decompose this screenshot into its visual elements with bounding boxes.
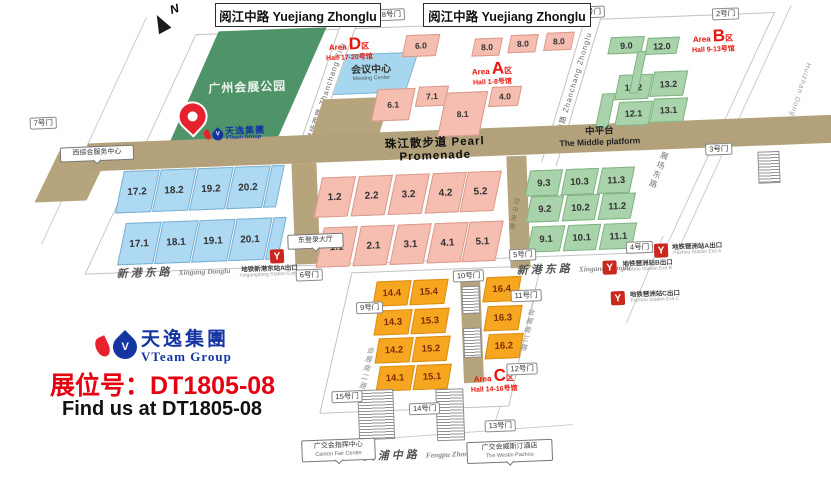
metro-station-label: 地铁琶洲站A出口 Pazhou Station Exit A: [672, 242, 723, 257]
boundary-lines: [0, 0, 825, 4]
halls-area-b-main: 9.310.311.39.210.211.29.110.111.1: [0, 0, 825, 4]
stairs: [757, 151, 780, 184]
stairs: [435, 388, 465, 441]
area-label: Area B区 Hall 9-13号馆: [668, 26, 759, 55]
building-labels: 西综合服务中心 东登录大厅 广交会指挥中心 Canton Fair Center…: [0, 0, 825, 4]
company-name-cn: 天逸集團: [141, 330, 232, 350]
street-label: 阅江中路 Yuejiang Zhonglu: [219, 6, 377, 25]
halls-area-a-main: 1.22.23.24.25.21.12.13.14.15.1: [0, 0, 825, 4]
hall: 12.1: [614, 101, 653, 127]
area-label: Area D区 Hall 17-20号馆: [304, 34, 395, 63]
metro-station-label: 地铁琶洲站C出口 Pazhou Station Exit C: [630, 290, 681, 305]
gate-label: 8号门: [378, 8, 406, 21]
hall: 10.1: [563, 224, 601, 251]
logo-mark-red-icon: [202, 129, 212, 141]
gate-label: 9号门: [356, 301, 384, 314]
hall: 10.2: [562, 194, 600, 221]
building-label: 广交会指挥中心 Canton Fair Center: [301, 438, 376, 462]
middle-platform-label: 中平台 The Middle platform: [544, 125, 655, 150]
hall: 13.2: [649, 70, 688, 97]
halls-area-d: 17.218.219.220.217.118.119.120.1: [0, 0, 825, 4]
street-xingang-west: 新港东路Xingang Donglu: [116, 261, 230, 281]
logo-mark-red-icon: [92, 335, 112, 359]
halls-area-c: 14.415.416.414.315.316.314.215.216.214.1…: [0, 0, 825, 4]
metro-icon: Y: [654, 243, 669, 258]
metro-icon: Y: [602, 260, 617, 275]
gate-labels: 8号门1号门2号门7号门3号门5号门4号门6号门9号门10号门11号门12号门1…: [0, 0, 825, 4]
hall: 16.3: [483, 305, 522, 332]
hall: 13.1: [649, 97, 688, 123]
street-fengpu: 凤浦中路Fengpu Zhonglu: [363, 444, 478, 464]
area-labels: Area D区 Hall 17-20号馆 Area A区 Hall 1-8号馆 …: [0, 0, 825, 4]
hall: 14.2: [375, 337, 414, 364]
gate-label: 10号门: [453, 269, 485, 282]
gate-label: 6号门: [296, 269, 324, 282]
logo-mark-blue-icon: V: [210, 127, 226, 143]
halls-area-a-north: 6.08.08.08.06.17.18.14.0: [0, 0, 825, 4]
booth-number-cn: 展位号：DT1805-08: [50, 366, 275, 402]
gate-label: 3号门: [705, 143, 733, 156]
hall: 15.2: [412, 336, 451, 363]
building-label: 东登录大厅: [287, 233, 344, 250]
hall: 6.1: [371, 88, 416, 122]
hall: 11.3: [597, 166, 635, 193]
hall: 8.0: [471, 37, 503, 56]
halls-area-b-north: 9.012.012.213.212.113.1: [0, 0, 825, 4]
metro-icons: YYYY: [0, 0, 825, 4]
gate-label: 15号门: [331, 390, 363, 403]
street-yuejiang-east: 阅江中路 Yuejiang Zhonglu: [423, 3, 591, 27]
gate-label: 2号门: [712, 7, 740, 20]
company-name-en: VTeam Group: [141, 350, 232, 364]
hall: 4.0: [488, 86, 522, 107]
walkway-corridors: [0, 0, 825, 4]
vteam-logo-map: V 天逸集團 VTeam Group: [204, 126, 266, 143]
hall: 14.1: [376, 365, 415, 392]
hall: 10.3: [561, 168, 599, 195]
booth-number-en: Find us at DT1805-08: [62, 398, 262, 421]
hall: 15.4: [409, 279, 448, 306]
street-label: 阅江中路 Yuejiang Zhonglu: [428, 6, 586, 25]
meeting-center-en: Meeting Center: [351, 75, 391, 83]
vteam-logo-large: V 天逸集團 VTeam Group: [96, 330, 232, 364]
hall: 8.0: [543, 32, 575, 51]
gate-label: 5号门: [509, 248, 537, 261]
north-arrow-icon: N: [150, 2, 190, 42]
hall: 6.0: [402, 34, 441, 57]
north-letter: N: [168, 1, 181, 17]
stairs-group: [0, 0, 825, 4]
metro-station-label: 地铁琶洲站B出口 Pazhou Station Exit B: [622, 259, 673, 274]
building-label: 西综合服务中心: [60, 145, 135, 163]
logo-mark-blue-icon: V: [108, 330, 142, 364]
metro-icon: Y: [270, 249, 285, 264]
stairs: [357, 389, 395, 440]
gate-label: 12号门: [506, 362, 538, 375]
canton-fair-map-flyer: N 阅江中路 Yuejiang Zhonglu 阅江中路 Yuejiang Zh…: [0, 0, 831, 483]
hall: 8.0: [507, 34, 539, 53]
hall: 15.1: [413, 364, 452, 391]
stairs: [463, 328, 482, 359]
building-label: 广交会威斯汀酒店 The Westin Pazhou: [466, 439, 553, 464]
north-triangle-icon: [151, 12, 172, 34]
street-yuejiang-west: 阅江中路 Yuejiang Zhonglu: [215, 3, 381, 27]
metro-icon: Y: [611, 291, 626, 306]
hall: 11.2: [598, 192, 636, 219]
hall: 15.3: [410, 308, 449, 335]
hall: 9.3: [525, 169, 563, 196]
metro-labels: 地铁新港东站A出口 Xingangdong Station Exit A 地铁琶…: [0, 0, 825, 4]
gate-label: 7号门: [30, 117, 58, 130]
stairs: [461, 286, 480, 315]
gate-label: 4号门: [626, 241, 654, 254]
area-label: Area A区 Hall 1-8号馆: [447, 58, 538, 87]
gate-label: 14号门: [409, 402, 441, 415]
hall: 9.2: [526, 195, 564, 222]
gate-label: 11号门: [510, 289, 541, 302]
park-label: 广州会展公园: [208, 76, 287, 96]
pearl-promenade-label: 珠江散步道 Pearl Promenade: [360, 131, 511, 165]
gate-label: 13号门: [484, 419, 516, 432]
